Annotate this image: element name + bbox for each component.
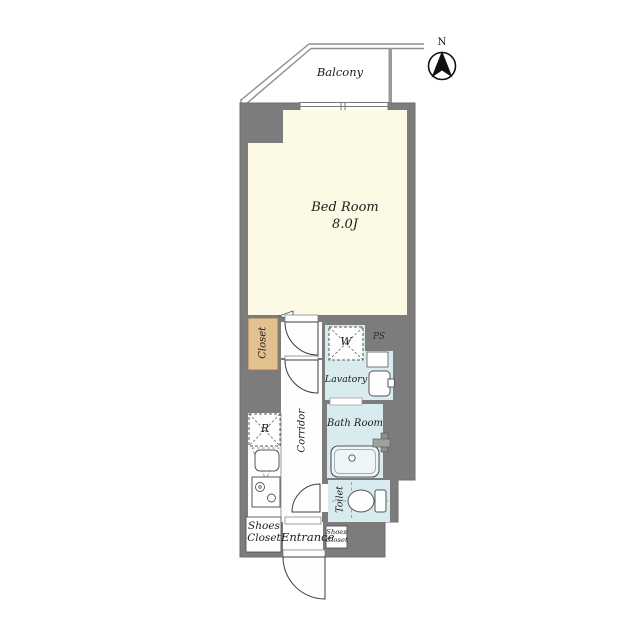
bedroom-floor-left: [248, 143, 283, 315]
shoes-closet-small-box: [326, 526, 347, 548]
shoes-closet-box: [246, 517, 281, 552]
floor-plan: Balcony Bed Room 8.0J Closet W PS Lavato…: [0, 0, 640, 640]
floor-plan-drawing: [0, 0, 640, 640]
entrance-floor: [283, 522, 323, 552]
washer-icon: [329, 327, 363, 360]
stove-icon: [252, 477, 280, 507]
toilet-icon: [348, 490, 386, 512]
north-compass-icon: [429, 51, 456, 80]
toilet-doorway: [320, 484, 328, 512]
lavatory-bath-door: [330, 398, 362, 405]
corridor-entrance-step: [285, 517, 321, 524]
balcony-side-wall: [389, 48, 393, 105]
balcony-outline: [241, 44, 424, 105]
bedroom-window: [300, 103, 388, 111]
bathtub-icon: [331, 446, 379, 477]
refrigerator-icon: [249, 414, 280, 446]
entrance-door-swing: [283, 557, 325, 599]
kitchen-sink-icon: [255, 450, 279, 471]
pipe-shaft-box: [367, 352, 388, 367]
bedroom-floor: [283, 110, 407, 315]
closet-floor: [248, 318, 278, 370]
pipe-shaft-block: [365, 325, 393, 351]
